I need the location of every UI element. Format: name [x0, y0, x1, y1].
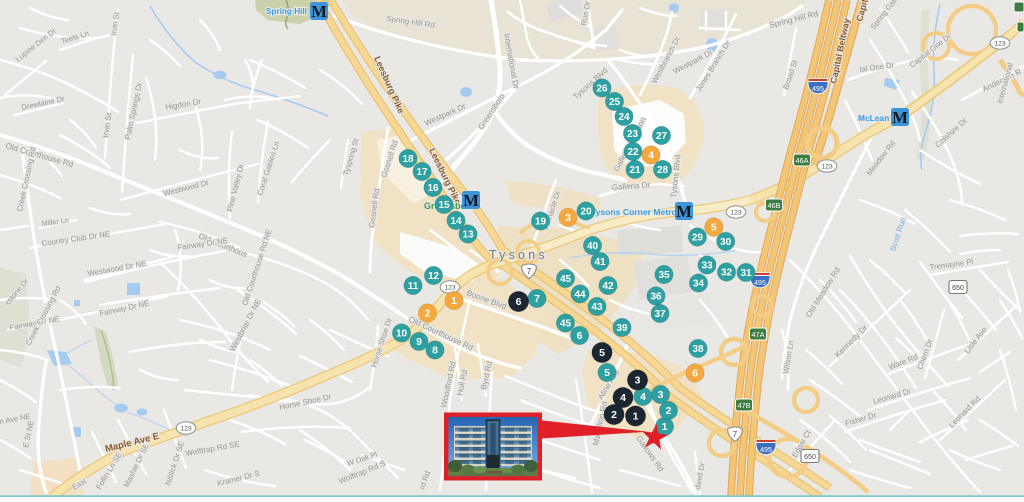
svg-text:19: 19 [535, 217, 547, 228]
svg-text:18: 18 [402, 154, 414, 165]
svg-text:32: 32 [721, 268, 733, 279]
svg-text:24: 24 [618, 112, 630, 123]
svg-text:33: 33 [701, 261, 713, 272]
svg-text:8: 8 [432, 345, 438, 357]
svg-text:39: 39 [616, 323, 628, 334]
svg-text:22: 22 [627, 147, 639, 158]
svg-text:44: 44 [574, 290, 586, 301]
svg-text:11: 11 [408, 281, 419, 292]
svg-text:5: 5 [599, 347, 605, 359]
svg-text:34: 34 [693, 279, 705, 290]
svg-text:9: 9 [416, 336, 422, 348]
svg-text:26: 26 [596, 84, 608, 95]
svg-text:4: 4 [620, 392, 626, 404]
svg-text:12: 12 [428, 271, 440, 282]
svg-text:M: M [311, 2, 327, 21]
svg-text:1: 1 [662, 421, 668, 433]
svg-text:47A: 47A [751, 330, 764, 339]
svg-text:47B: 47B [737, 401, 750, 410]
svg-text:Tysons Corner Metro: Tysons Corner Metro [591, 207, 677, 217]
svg-text:1: 1 [633, 411, 639, 423]
svg-text:123: 123 [180, 426, 192, 433]
svg-text:6: 6 [577, 330, 583, 342]
svg-text:27: 27 [656, 131, 668, 142]
svg-text:20: 20 [580, 207, 592, 218]
svg-text:17: 17 [416, 167, 428, 178]
svg-text:13: 13 [462, 230, 474, 241]
svg-text:M: M [676, 202, 692, 221]
svg-text:1: 1 [451, 295, 457, 307]
svg-text:495: 495 [754, 280, 766, 287]
svg-text:42: 42 [602, 281, 614, 292]
svg-text:45: 45 [560, 274, 572, 285]
svg-text:29: 29 [692, 233, 704, 244]
svg-text:5: 5 [604, 367, 610, 379]
svg-text:14: 14 [450, 216, 462, 227]
svg-text:28: 28 [657, 165, 669, 176]
svg-text:4: 4 [648, 150, 654, 162]
svg-text:3: 3 [658, 389, 664, 401]
svg-text:123: 123 [444, 285, 456, 292]
svg-text:650: 650 [952, 285, 964, 292]
svg-text:45: 45 [560, 319, 572, 330]
svg-text:40: 40 [587, 241, 599, 252]
svg-text:2: 2 [611, 409, 617, 421]
svg-text:41: 41 [594, 257, 606, 268]
svg-text:495: 495 [760, 447, 772, 454]
svg-text:10: 10 [396, 329, 408, 340]
svg-text:7: 7 [733, 430, 738, 439]
svg-text:3: 3 [565, 212, 571, 224]
svg-text:21: 21 [629, 165, 641, 176]
svg-text:5: 5 [711, 222, 717, 234]
svg-text:M: M [892, 108, 908, 127]
svg-text:46A: 46A [795, 156, 808, 165]
svg-text:7: 7 [534, 293, 540, 305]
svg-text:123: 123 [730, 210, 742, 217]
svg-text:30: 30 [720, 237, 732, 248]
svg-text:3: 3 [635, 375, 641, 387]
svg-text:35: 35 [658, 270, 670, 281]
svg-text:650: 650 [804, 454, 816, 461]
svg-text:16: 16 [427, 183, 439, 194]
svg-text:36: 36 [650, 292, 662, 303]
svg-text:2: 2 [425, 308, 431, 320]
svg-text:15: 15 [438, 200, 450, 211]
svg-text:37: 37 [654, 309, 666, 320]
svg-text:495: 495 [812, 86, 824, 93]
svg-text:46B: 46B [767, 201, 780, 210]
svg-text:McLean: McLean [858, 113, 889, 123]
svg-text:38: 38 [692, 344, 704, 355]
svg-text:Spring Hill: Spring Hill [266, 7, 307, 16]
svg-text:23: 23 [627, 129, 639, 140]
svg-text:25: 25 [609, 97, 621, 108]
svg-text:7: 7 [527, 267, 532, 276]
svg-text:Tysons: Tysons [489, 248, 548, 262]
svg-text:123: 123 [821, 164, 833, 171]
svg-text:M: M [463, 191, 479, 210]
svg-text:2: 2 [666, 405, 672, 417]
svg-text:31: 31 [740, 268, 752, 279]
svg-text:6: 6 [692, 368, 698, 380]
svg-text:43: 43 [591, 302, 603, 313]
svg-text:123: 123 [994, 41, 1006, 48]
svg-text:4: 4 [640, 391, 646, 403]
svg-text:6: 6 [516, 296, 522, 308]
